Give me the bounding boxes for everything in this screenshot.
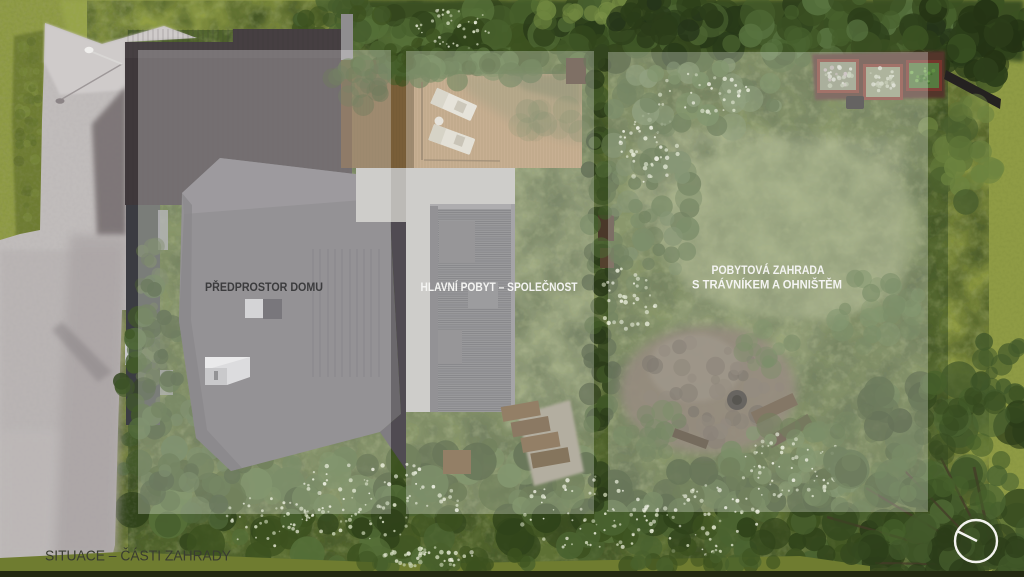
svg-text:HLAVNÍ POBYT – SPOLEČNOST: HLAVNÍ POBYT – SPOLEČNOST [421,281,578,294]
svg-text:POBYTOVÁ ZAHRADA: POBYTOVÁ ZAHRADA [712,264,825,277]
svg-text:S TRÁVNÍKEM A OHNIŠTĚM: S TRÁVNÍKEM A OHNIŠTĚM [692,279,842,292]
svg-text:SITUACE – ČÁSTI ZAHRADY: SITUACE – ČÁSTI ZAHRADY [45,548,231,565]
svg-text:PŘEDPROSTOR DOMU: PŘEDPROSTOR DOMU [205,281,323,294]
